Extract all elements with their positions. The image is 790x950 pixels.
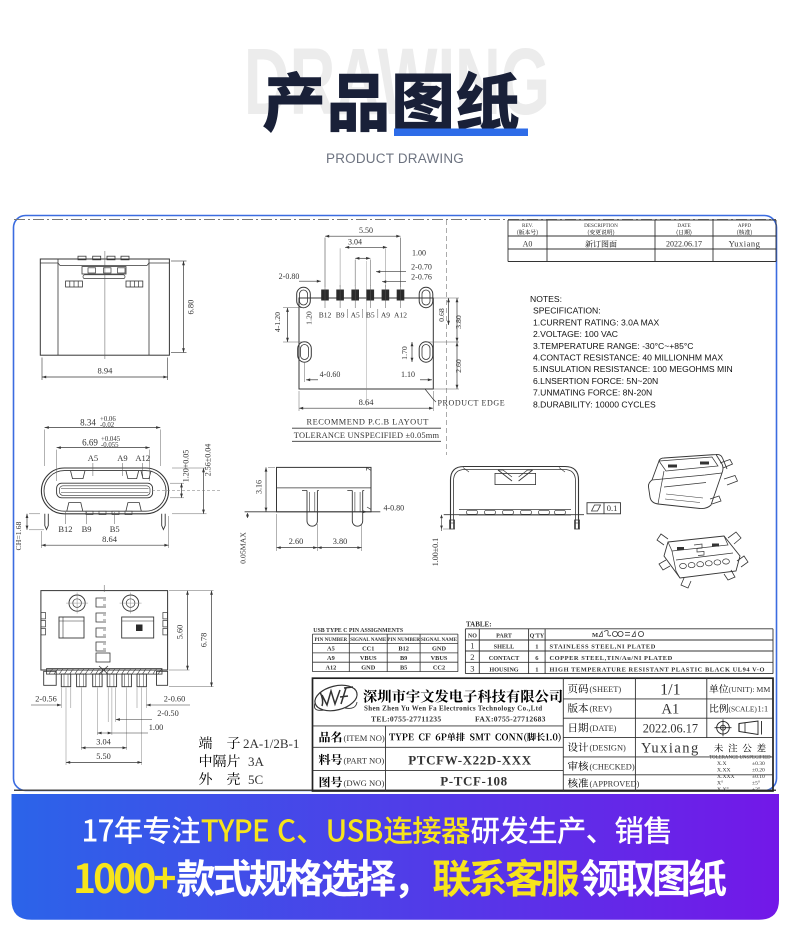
svg-text:B9: B9 <box>336 311 345 320</box>
svg-text:HOUSING: HOUSING <box>489 666 518 673</box>
svg-text:6.80: 6.80 <box>186 300 196 315</box>
svg-text:8.94: 8.94 <box>97 366 113 376</box>
svg-text:0.1: 0.1 <box>607 503 618 513</box>
svg-text:Shen Zhen Yu Wen Fa Electronic: Shen Zhen Yu Wen Fa Electronics Technolo… <box>364 705 543 713</box>
svg-text:A9: A9 <box>327 655 335 662</box>
svg-text:APPD: APPD <box>738 223 752 229</box>
svg-text:1.00±0.1: 1.00±0.1 <box>431 538 440 566</box>
svg-text:2-0.60: 2-0.60 <box>164 695 185 704</box>
svg-text:(SCALE): (SCALE) <box>729 705 758 714</box>
svg-text:GND: GND <box>361 664 375 671</box>
svg-text:NO: NO <box>468 633 477 639</box>
svg-text:P-TCF-108: P-TCF-108 <box>440 774 508 789</box>
svg-text:A12: A12 <box>394 311 407 320</box>
svg-text:A5: A5 <box>327 646 335 653</box>
svg-text:3A: 3A <box>248 754 265 769</box>
svg-text:3.16: 3.16 <box>255 480 264 494</box>
svg-text:0.68: 0.68 <box>437 308 446 322</box>
svg-text:A5: A5 <box>88 453 98 463</box>
svg-text:-0.02: -0.02 <box>100 422 115 429</box>
svg-text:1: 1 <box>535 644 538 651</box>
svg-text:3.04: 3.04 <box>348 237 362 246</box>
svg-text:5.50: 5.50 <box>96 752 111 761</box>
svg-text:HIGH TEMPERATURE RESISTANT PLA: HIGH TEMPERATURE RESISTANT PLASTIC BLACK… <box>550 666 766 673</box>
svg-text:1/1: 1/1 <box>660 682 680 699</box>
svg-text:0.05MAX: 0.05MAX <box>239 532 248 564</box>
svg-text:B9: B9 <box>400 655 407 662</box>
svg-text:STAINLESS STEEL,NI PLATED: STAINLESS STEEL,NI PLATED <box>550 644 656 651</box>
svg-text:VBUS: VBUS <box>360 655 377 662</box>
svg-text:1.20+0.05: 1.20+0.05 <box>182 450 191 483</box>
svg-text:GND: GND <box>432 646 446 653</box>
svg-text:2-0.56: 2-0.56 <box>35 695 56 704</box>
svg-text:A9: A9 <box>117 453 127 463</box>
svg-text:PIN NUMBER: PIN NUMBER <box>315 637 348 643</box>
svg-text:PART: PART <box>496 633 512 639</box>
svg-text:-0.055: -0.055 <box>101 442 119 449</box>
svg-text:5C: 5C <box>248 772 263 787</box>
svg-text:(DWG NO): (DWG NO) <box>344 778 385 788</box>
svg-text:6.LNSERTION FORCE: 5N~20N: 6.LNSERTION FORCE: 5N~20N <box>533 376 658 386</box>
svg-text:1.10: 1.10 <box>401 370 415 379</box>
svg-text:A9: A9 <box>381 311 390 320</box>
svg-text:SIGNAL NAME: SIGNAL NAME <box>421 637 458 643</box>
svg-text:B5: B5 <box>366 311 375 320</box>
svg-text:2022.06.17: 2022.06.17 <box>666 240 702 249</box>
svg-text:X.XXX: X.XXX <box>717 774 735 780</box>
svg-text:A12: A12 <box>325 664 336 671</box>
svg-text:(REV): (REV) <box>590 705 613 714</box>
svg-text:2: 2 <box>470 652 474 662</box>
svg-text:2A-1/2B-1: 2A-1/2B-1 <box>243 736 299 751</box>
svg-text:(DESIGN): (DESIGN) <box>590 744 626 753</box>
svg-text:PIN NUMBER: PIN NUMBER <box>387 637 420 643</box>
svg-text:5.50: 5.50 <box>359 226 373 235</box>
svg-text:A5: A5 <box>351 311 360 320</box>
svg-text:2.56±0.04: 2.56±0.04 <box>204 444 213 476</box>
svg-text:3.80: 3.80 <box>454 315 463 329</box>
svg-text:4-0.80: 4-0.80 <box>384 503 405 512</box>
svg-text:±0.20: ±0.20 <box>752 768 765 774</box>
svg-text:5.60: 5.60 <box>176 625 185 640</box>
svg-text:3.80: 3.80 <box>333 537 348 546</box>
svg-text:X.XX: X.XX <box>717 768 731 774</box>
svg-text:CC1: CC1 <box>362 646 374 653</box>
svg-text:A1: A1 <box>662 702 680 718</box>
svg-text:Q'TY: Q'TY <box>530 633 545 639</box>
svg-text:PRODUCT DRAWING: PRODUCT DRAWING <box>326 151 464 166</box>
svg-text:8.64: 8.64 <box>359 397 375 407</box>
svg-text:3: 3 <box>470 663 474 673</box>
svg-text:±5°: ±5° <box>752 779 760 786</box>
svg-text:1: 1 <box>470 641 474 651</box>
svg-text:SHELL: SHELL <box>494 644 515 651</box>
svg-text:B12: B12 <box>58 524 72 534</box>
svg-text:7.UNMATING FORCE: 8N-20N: 7.UNMATING FORCE: 8N-20N <box>533 388 652 398</box>
svg-text:(DATE): (DATE) <box>590 724 617 733</box>
svg-text:NOTES:: NOTES: <box>530 294 562 304</box>
svg-text:8.DURABILITY: 10000 CYCLES: 8.DURABILITY: 10000 CYCLES <box>533 399 656 409</box>
svg-text:TOLERANCE UNSPECIFIED: TOLERANCE UNSPECIFIED <box>709 755 771 760</box>
svg-text:4-0.60: 4-0.60 <box>320 370 341 379</box>
svg-text:B5: B5 <box>110 524 120 534</box>
svg-text:6.69: 6.69 <box>82 437 98 447</box>
svg-text:2022.06.17: 2022.06.17 <box>643 721 698 735</box>
svg-text:SIGNAL NAME: SIGNAL NAME <box>350 637 387 643</box>
svg-text:X°: X° <box>717 779 723 786</box>
svg-text:TABLE:: TABLE: <box>466 621 492 629</box>
svg-text:1.20: 1.20 <box>305 311 314 325</box>
svg-text:USB TYPE C PIN ASSIGNMENTS: USB TYPE C PIN ASSIGNMENTS <box>313 628 404 634</box>
svg-text:2-0.80: 2-0.80 <box>279 272 300 281</box>
svg-text:1: 1 <box>535 666 538 673</box>
svg-text:REV.: REV. <box>522 223 533 229</box>
svg-text:(CHECKED): (CHECKED) <box>590 763 635 772</box>
svg-text:2-0.50: 2-0.50 <box>157 709 178 718</box>
svg-text:2-0.70: 2-0.70 <box>411 262 432 271</box>
svg-text:6: 6 <box>535 655 539 662</box>
svg-text:B12: B12 <box>319 311 332 320</box>
svg-text:DATE: DATE <box>677 223 690 229</box>
svg-text:Yuxiang: Yuxiang <box>641 740 700 756</box>
svg-text:DESCRIPTION: DESCRIPTION <box>584 223 618 229</box>
svg-text:±0.10: ±0.10 <box>752 774 765 780</box>
svg-text:B5: B5 <box>400 664 407 671</box>
svg-text:X.X°: X.X° <box>717 786 729 793</box>
svg-text:COPPER STEEL,TIN/Au/NI PLATED: COPPER STEEL,TIN/Au/NI PLATED <box>550 655 673 662</box>
svg-text:2.60: 2.60 <box>454 359 463 373</box>
svg-text:CH=1.68: CH=1.68 <box>14 521 23 550</box>
svg-text:PTCFW-X22D-XXX: PTCFW-X22D-XXX <box>408 753 531 768</box>
svg-text:TEL:0755-27711235: TEL:0755-27711235 <box>371 714 442 723</box>
svg-text:4-1.20: 4-1.20 <box>273 312 282 332</box>
svg-text:2.60: 2.60 <box>289 537 304 546</box>
svg-text:2-0.76: 2-0.76 <box>411 272 432 281</box>
svg-text:X.X: X.X <box>717 761 726 767</box>
svg-text:3.TEMPERATURE RANGE: -30°C~+85: 3.TEMPERATURE RANGE: -30°C~+85°C <box>533 341 694 351</box>
svg-text:4.CONTACT RESISTANCE: 40 MILLI: 4.CONTACT RESISTANCE: 40 MILLIONHM MAX <box>533 353 723 363</box>
svg-text:CC2: CC2 <box>433 664 445 671</box>
svg-text:A0: A0 <box>523 240 533 249</box>
svg-text:±2°: ±2° <box>752 786 760 793</box>
svg-text:1.70: 1.70 <box>400 346 409 360</box>
svg-text:(ITEM NO): (ITEM NO) <box>344 733 385 743</box>
svg-text:1:1: 1:1 <box>758 705 769 714</box>
svg-text:1.00: 1.00 <box>412 249 426 258</box>
svg-text:B12: B12 <box>398 646 409 653</box>
svg-text:1.CURRENT RATING: 3.0A MAX: 1.CURRENT RATING: 3.0A MAX <box>533 317 659 327</box>
svg-text:FAX:0755-27712683: FAX:0755-27712683 <box>475 714 546 723</box>
svg-text:±0.30: ±0.30 <box>752 761 765 767</box>
svg-text:8.34: 8.34 <box>80 418 96 428</box>
svg-text:B9: B9 <box>82 524 92 534</box>
svg-text:6.78: 6.78 <box>200 633 209 648</box>
svg-text:VBUS: VBUS <box>431 655 448 662</box>
svg-text:RECOMMEND P.C.B LAYOUT: RECOMMEND P.C.B LAYOUT <box>307 418 429 427</box>
svg-text:5.INSULATION RESISTANCE: 100 M: 5.INSULATION RESISTANCE: 100 MEGOHMS MIN <box>533 364 733 374</box>
svg-text:(SHEET): (SHEET) <box>590 685 622 694</box>
svg-text:PRODUCT EDGE: PRODUCT EDGE <box>438 399 506 408</box>
svg-text:1.00: 1.00 <box>149 723 164 732</box>
svg-text:Yuxiang: Yuxiang <box>729 239 761 249</box>
svg-text:2.VOLTAGE: 100 VAC: 2.VOLTAGE: 100 VAC <box>533 329 618 339</box>
svg-text:M: M <box>592 632 598 639</box>
svg-text:TOLERANCE UNSPECIFIED ±0.05mm: TOLERANCE UNSPECIFIED ±0.05mm <box>294 431 440 440</box>
svg-text:A12: A12 <box>135 453 150 463</box>
svg-text:3.04: 3.04 <box>96 737 111 746</box>
svg-text:(APPROVED): (APPROVED) <box>590 780 640 789</box>
svg-text:(UNIT): MM: (UNIT): MM <box>729 685 771 694</box>
svg-text:CONTACT: CONTACT <box>489 655 520 662</box>
svg-text:8.64: 8.64 <box>102 534 118 544</box>
svg-text:(PART NO): (PART NO) <box>344 756 385 766</box>
svg-text:SPECIFICATION:: SPECIFICATION: <box>533 306 601 316</box>
